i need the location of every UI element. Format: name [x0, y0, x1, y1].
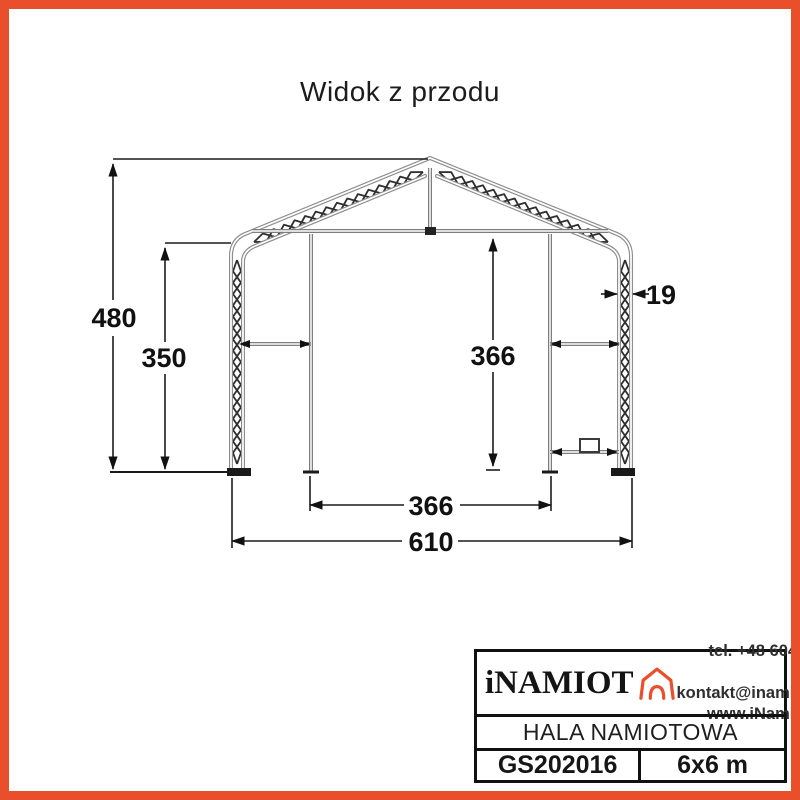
tent-house-icon [637, 666, 677, 700]
contact-email: kontakt@inamiot.pl [677, 683, 800, 704]
base-detail-box [580, 439, 599, 452]
structure-details [110, 340, 635, 476]
brand-logo: iNAMIOT [485, 665, 677, 702]
dimension-label-door-width: 366 [408, 491, 453, 521]
dimension-label-overall-width: 610 [408, 527, 453, 557]
contact-info: tel. +48 604 108 143 kontakt@inamiot.pl … [677, 641, 800, 724]
contact-phone: tel. +48 604 108 143 [677, 641, 800, 683]
left-base-plate [227, 468, 251, 476]
model-number: GS202016 [477, 751, 638, 780]
title-block-header: iNAMIOT tel. +48 604 108 143 kontakt@ina… [477, 652, 784, 714]
title-block: iNAMIOT tel. +48 604 108 143 kontakt@ina… [474, 649, 787, 783]
product-size: 6x6 m [638, 751, 784, 780]
page: Widok z przodu [0, 0, 800, 800]
dimension-label-side-wall-height: 350 [141, 343, 186, 373]
dimension-lines [113, 159, 649, 548]
dimension-label-truss-thickness: 19 [646, 280, 676, 310]
brand-name: iNAMIOT [485, 665, 634, 702]
dimension-label-clear-inner-height: 366 [470, 341, 515, 371]
dimension-label-overall-height: 480 [91, 303, 136, 333]
right-base-plate [611, 468, 635, 476]
product-name: HALA NAMIOTOWA [477, 714, 784, 748]
title-block-bottom-row: GS202016 6x6 m [477, 748, 784, 780]
dimension-labels: 480 350 366 19 366 610 [91, 280, 676, 557]
